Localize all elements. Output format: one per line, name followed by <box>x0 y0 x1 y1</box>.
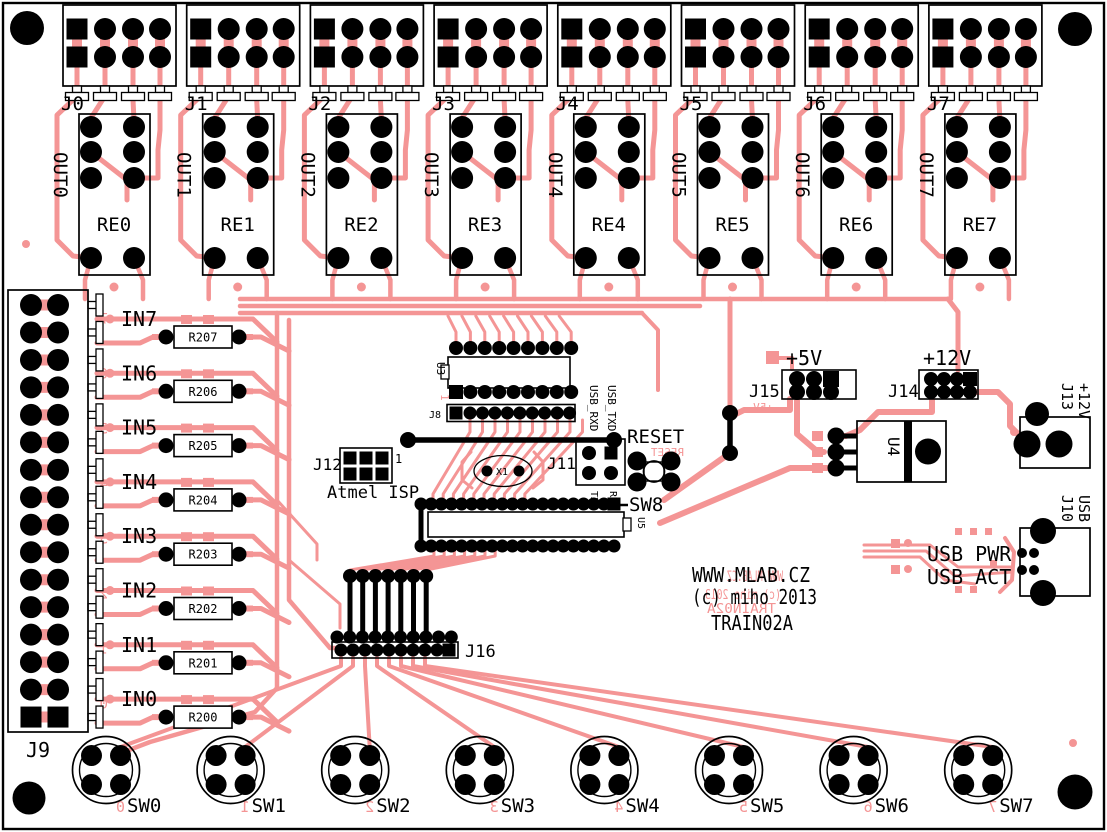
pad <box>206 745 227 766</box>
pad <box>1046 431 1073 458</box>
j12-pin1-label: 1 <box>395 452 402 466</box>
copper-pad <box>181 369 192 378</box>
reset-label: RESET <box>627 426 684 448</box>
pad <box>618 116 640 138</box>
pad <box>369 18 391 40</box>
pad <box>589 46 611 68</box>
resistor-label: R204 <box>189 493 218 507</box>
pad <box>356 569 370 583</box>
pad <box>327 141 349 163</box>
pin-stub <box>96 376 103 398</box>
pad <box>246 46 268 68</box>
pin-stub <box>493 93 516 101</box>
pin-stub <box>376 86 385 93</box>
pin-stub <box>94 93 117 101</box>
pad <box>396 46 418 68</box>
pin-stub <box>747 86 756 93</box>
pin-stub <box>96 541 103 563</box>
pin-stub <box>444 86 453 93</box>
switch-label: SW5 <box>750 795 784 817</box>
connector-label: J7 <box>927 93 950 115</box>
u5-notch <box>623 518 631 531</box>
title-line2: (c) miho 2013 <box>692 585 817 609</box>
pad <box>20 486 42 508</box>
pad <box>20 569 42 591</box>
u4-label: U4 <box>884 437 903 456</box>
pin-stub <box>623 86 632 93</box>
pad <box>704 745 725 766</box>
pad <box>989 247 1011 269</box>
j12-label: J12 <box>313 455 342 474</box>
pad-square <box>67 47 88 68</box>
pad <box>359 644 372 657</box>
pad <box>394 569 408 583</box>
pad <box>123 141 145 163</box>
pin-stub <box>73 86 82 93</box>
pad <box>476 407 489 420</box>
input-label: IN5 <box>121 416 157 440</box>
input-label: IN4 <box>121 470 157 494</box>
pad <box>478 385 492 399</box>
out-label: OUT2 <box>296 152 318 198</box>
pad <box>950 372 964 386</box>
pin-stub <box>836 93 859 101</box>
pad <box>822 141 844 163</box>
out-label: OUT6 <box>791 152 813 198</box>
pad <box>478 341 492 355</box>
pad-square <box>809 47 830 68</box>
switch-label: SW1 <box>252 795 286 817</box>
pad <box>359 745 380 766</box>
pad <box>204 116 226 138</box>
pad <box>13 782 46 815</box>
pad <box>644 18 666 40</box>
pad <box>235 745 256 766</box>
pad <box>963 385 977 399</box>
pad <box>989 167 1011 189</box>
pad <box>335 644 348 657</box>
pad <box>488 407 501 420</box>
pin-stub <box>149 93 172 101</box>
pin-stub <box>691 86 700 93</box>
pad <box>836 46 858 68</box>
copper-pad <box>181 315 192 324</box>
copper-pad <box>203 532 214 541</box>
pad <box>407 569 421 583</box>
pad <box>110 774 131 795</box>
pin-stub <box>959 93 982 101</box>
out-label: OUT5 <box>668 152 690 198</box>
pad <box>341 46 363 68</box>
pad <box>589 18 611 40</box>
pin-stub <box>320 86 329 93</box>
pad <box>122 18 144 40</box>
via <box>728 283 737 292</box>
pad <box>988 46 1010 68</box>
pad <box>343 569 357 583</box>
via <box>604 283 613 292</box>
usb-rxd-label: USB_RXD <box>587 385 600 431</box>
pad <box>47 651 69 673</box>
pad <box>494 141 516 163</box>
pad <box>218 46 240 68</box>
pad <box>575 141 597 163</box>
u5-label: U5 <box>635 517 646 529</box>
pad <box>235 774 256 795</box>
pad <box>617 18 639 40</box>
pad <box>94 46 116 68</box>
pad <box>806 384 822 400</box>
pin-stub <box>96 569 103 591</box>
pin-stub <box>767 93 790 101</box>
pin-stub <box>252 86 261 93</box>
pad <box>484 774 505 795</box>
pad <box>482 466 493 477</box>
pad <box>865 167 887 189</box>
pad <box>742 247 764 269</box>
pad <box>47 679 69 701</box>
pad <box>247 141 269 163</box>
pad <box>742 116 764 138</box>
pad-square <box>438 19 459 40</box>
pad-square <box>360 468 373 481</box>
pad-square <box>438 47 459 68</box>
pad <box>20 294 42 316</box>
pin-stub <box>567 86 576 93</box>
pin-stub <box>987 93 1010 101</box>
copper-pad <box>203 315 214 324</box>
pad <box>1015 46 1037 68</box>
pad-square <box>443 644 456 657</box>
pad <box>946 141 968 163</box>
pad <box>492 385 506 399</box>
pad <box>20 541 42 563</box>
copper-pad <box>812 447 823 457</box>
pad <box>80 116 102 138</box>
via <box>1069 739 1077 747</box>
pad <box>865 116 887 138</box>
pad <box>407 644 420 657</box>
via <box>357 283 366 292</box>
pin-stub <box>96 431 103 453</box>
pad <box>327 116 349 138</box>
switch-label: SW2 <box>376 795 410 817</box>
pad <box>484 745 505 766</box>
pad <box>455 745 476 766</box>
title-line3: TRAIN02A <box>711 611 793 635</box>
j10-label: J10 <box>1058 495 1076 522</box>
input-label: IN3 <box>121 524 157 548</box>
pad <box>550 341 564 355</box>
pad <box>370 141 392 163</box>
pad <box>742 141 764 163</box>
pin-stub <box>472 86 481 93</box>
pad <box>463 341 477 355</box>
pad-square <box>376 452 389 465</box>
pad <box>579 774 600 795</box>
copper-pad <box>181 424 192 433</box>
pad <box>341 18 363 40</box>
via <box>904 539 912 547</box>
connector-label: J4 <box>556 93 579 115</box>
pad <box>822 116 844 138</box>
pad <box>464 407 477 420</box>
copper-pad <box>891 539 900 548</box>
pad <box>535 341 549 355</box>
pad <box>20 651 42 673</box>
pad <box>575 247 597 269</box>
pin-stub <box>871 86 880 93</box>
pin-stub <box>101 86 110 93</box>
pin-stub <box>245 93 268 101</box>
pin-stub <box>96 596 103 618</box>
pad <box>946 247 968 269</box>
pad <box>369 46 391 68</box>
pin-stub <box>272 93 295 101</box>
copper-pad <box>203 695 214 704</box>
pad <box>218 18 240 40</box>
copper-pad <box>203 369 214 378</box>
pad <box>94 18 116 40</box>
out-label: OUT3 <box>420 152 442 198</box>
pad <box>232 384 247 399</box>
via <box>110 283 119 292</box>
pad <box>20 321 42 343</box>
pad <box>768 46 790 68</box>
pad-square <box>314 19 335 40</box>
pad <box>47 596 69 618</box>
pin-stub <box>96 651 103 673</box>
pin-stub <box>156 86 165 93</box>
pad <box>608 745 629 766</box>
pin-stub <box>96 459 103 481</box>
pad <box>20 459 42 481</box>
pad-square <box>449 385 463 399</box>
pad <box>47 321 69 343</box>
pin-stub <box>96 679 103 701</box>
pad <box>20 431 42 453</box>
pad <box>20 349 42 371</box>
pin-stub <box>595 86 604 93</box>
connector-label: J1 <box>185 93 208 115</box>
pin-stub <box>403 86 412 93</box>
j10-type-label: USB <box>1075 495 1093 522</box>
pad <box>159 492 174 507</box>
pcb-screenshot: WWW.MLAB.CZ (c) miho 2013 TRAIN02A RESET… <box>0 0 1107 832</box>
pad-square <box>344 452 357 465</box>
via <box>852 283 861 292</box>
pin-stub <box>96 294 103 316</box>
pad-square <box>344 468 357 481</box>
relay-label: RE4 <box>592 214 626 236</box>
pad <box>988 18 1010 40</box>
pad <box>741 46 763 68</box>
resistor-label: R207 <box>189 331 218 345</box>
usb-pwr-label: USB PWR <box>927 542 1012 566</box>
pad <box>1014 431 1041 458</box>
pad-square <box>809 19 830 40</box>
pin-stub <box>966 86 975 93</box>
pad <box>465 46 487 68</box>
pad <box>982 745 1003 766</box>
pad <box>575 167 597 189</box>
pad <box>1030 580 1056 606</box>
pad <box>81 774 102 795</box>
resistor-label: R202 <box>189 602 218 616</box>
pad <box>699 167 721 189</box>
txd-label: TXD <box>588 491 599 509</box>
pad <box>247 167 269 189</box>
switch-label: SW3 <box>501 795 535 817</box>
pad <box>431 644 444 657</box>
pad <box>606 432 622 448</box>
pin-stub <box>196 86 205 93</box>
pad <box>149 18 171 40</box>
pad <box>604 466 618 480</box>
pad <box>1017 548 1027 558</box>
connector-label: J2 <box>308 93 331 115</box>
pin-stub <box>96 624 103 646</box>
copper-pad <box>812 431 823 441</box>
usb-txd-label: USB_TXD <box>605 385 618 431</box>
pad <box>463 385 477 399</box>
pad <box>493 18 515 40</box>
pad <box>232 438 247 453</box>
pad <box>159 547 174 562</box>
pad <box>20 679 42 701</box>
pad <box>494 247 516 269</box>
pad <box>617 46 639 68</box>
switch-label: SW4 <box>625 795 659 817</box>
relay-label: RE2 <box>344 214 378 236</box>
out-label: OUT0 <box>49 152 71 198</box>
pad <box>492 341 506 355</box>
pad <box>347 644 360 657</box>
pin-stub <box>891 93 914 101</box>
resistor-label: R206 <box>189 385 218 399</box>
pin-stub <box>348 86 357 93</box>
connector-label: J3 <box>432 93 455 115</box>
pin-stub <box>938 86 947 93</box>
pad <box>493 46 515 68</box>
pad <box>381 569 395 583</box>
pad <box>159 330 174 345</box>
rxd-label: RXD <box>607 491 618 509</box>
pin-stub <box>815 86 824 93</box>
pin-stub <box>588 93 611 101</box>
out-label: OUT1 <box>173 152 195 198</box>
pad <box>550 385 564 399</box>
pad <box>608 774 629 795</box>
pad-square <box>190 19 211 40</box>
pad <box>47 431 69 453</box>
u4-tab-bar <box>904 421 912 482</box>
pad <box>953 774 974 795</box>
via <box>1010 428 1018 436</box>
pad <box>1025 402 1049 426</box>
pad <box>359 774 380 795</box>
pad <box>507 385 521 399</box>
pad <box>247 247 269 269</box>
pad <box>699 141 721 163</box>
x1-label: X1 <box>496 467 508 478</box>
pad <box>1015 18 1037 40</box>
out-label: OUT7 <box>915 152 937 198</box>
pad <box>982 774 1003 795</box>
pad <box>371 644 384 657</box>
input-label: IN2 <box>121 579 157 603</box>
pad <box>20 404 42 426</box>
pin-stub <box>616 93 639 101</box>
pad <box>789 384 805 400</box>
pad <box>924 372 938 386</box>
pad-square <box>48 707 69 728</box>
pad <box>123 116 145 138</box>
via <box>22 240 30 248</box>
pin-stub <box>96 514 103 536</box>
pad <box>699 247 721 269</box>
sw8-label: SW8 <box>629 494 663 516</box>
j11-label: J11 <box>547 454 576 473</box>
j13-label: J13 <box>1058 383 1076 410</box>
pin-stub <box>864 93 887 101</box>
title-line1: WWW.MLAB.CZ <box>692 563 810 587</box>
pin-stub <box>898 86 907 93</box>
pad <box>451 167 473 189</box>
pad <box>204 247 226 269</box>
pad <box>1030 518 1056 544</box>
pin-stub <box>341 93 364 101</box>
pad <box>451 141 473 163</box>
pad <box>535 385 549 399</box>
pad <box>822 167 844 189</box>
resistor-label: R203 <box>189 548 218 562</box>
pad <box>960 18 982 40</box>
pad <box>768 18 790 40</box>
pad <box>122 46 144 68</box>
pad <box>946 167 968 189</box>
pin-stub <box>774 86 783 93</box>
j13-voltage-label: +12V <box>1075 383 1093 419</box>
j9-label: J9 <box>26 738 50 762</box>
pad <box>327 247 349 269</box>
pin-stub <box>1014 93 1037 101</box>
relay-label: RE0 <box>97 214 131 236</box>
copper-pad <box>181 587 192 596</box>
pad-square <box>67 19 88 40</box>
pad <box>47 514 69 536</box>
pin-stub <box>122 93 145 101</box>
pin-stub <box>740 93 763 101</box>
pad <box>829 774 850 795</box>
connector-label: J5 <box>680 93 703 115</box>
pad <box>47 349 69 371</box>
input-label: IN6 <box>121 361 157 385</box>
pad <box>400 432 416 448</box>
relay-label: RE7 <box>963 214 997 236</box>
pad <box>20 376 42 398</box>
pad <box>582 466 596 480</box>
j14-label: J14 <box>888 382 919 402</box>
pad <box>204 167 226 189</box>
pad <box>159 438 174 453</box>
pad <box>618 247 640 269</box>
pad <box>149 46 171 68</box>
input-label: IN7 <box>121 307 157 331</box>
pin-stub <box>279 86 288 93</box>
pad <box>551 407 564 420</box>
pin-stub <box>96 486 103 508</box>
